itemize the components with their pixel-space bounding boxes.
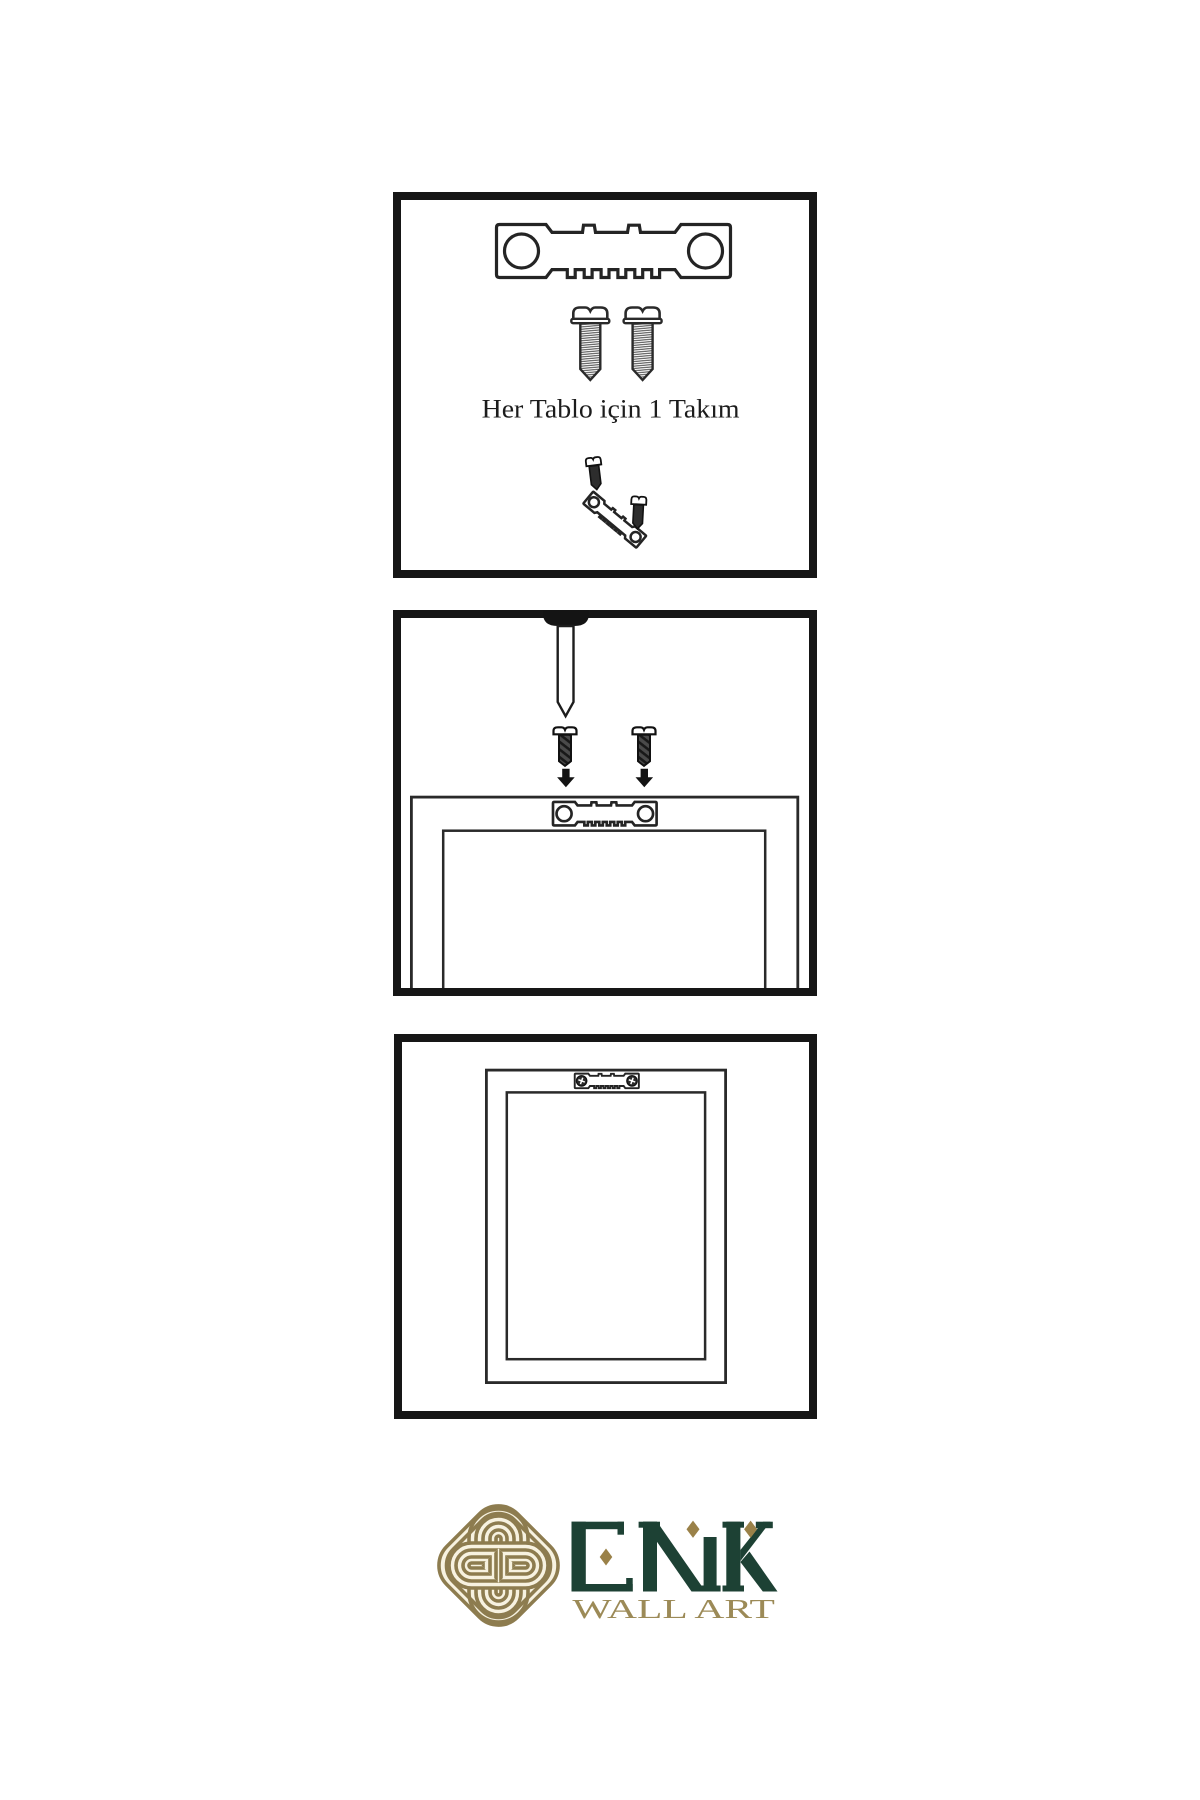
svg-text:Her Tablo için 1 Takım: Her Tablo için 1 Takım xyxy=(482,394,740,424)
svg-text:WALL ART: WALL ART xyxy=(572,1594,775,1624)
